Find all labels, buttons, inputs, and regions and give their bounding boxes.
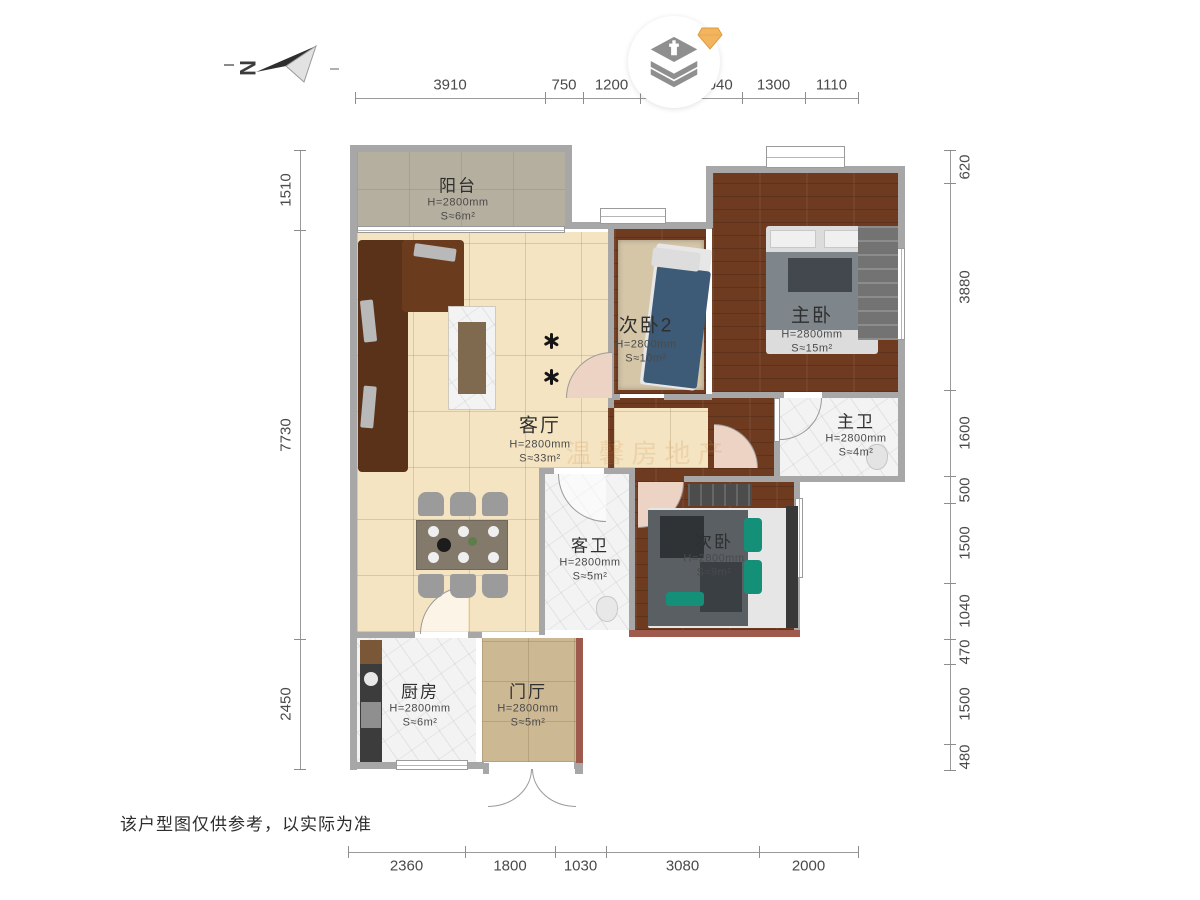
dim-right-tick bbox=[944, 390, 956, 391]
room-label-balcony: 阳台H=2800mmS≈6m² bbox=[427, 176, 488, 225]
window-mullion bbox=[901, 249, 902, 339]
dim-left-tick bbox=[294, 769, 306, 770]
room-name-master-bath: 主卫 bbox=[825, 412, 886, 433]
door-leaf-master-bath bbox=[774, 398, 780, 442]
room-label-living: 客厅H=2800mmS≈33m² bbox=[509, 414, 570, 465]
window bbox=[766, 146, 845, 168]
window bbox=[600, 208, 666, 224]
room-height-bedroom2: H=2800mm bbox=[615, 338, 676, 352]
dim-right-label: 3880 bbox=[957, 270, 974, 303]
window-mullion bbox=[601, 216, 665, 217]
dim-right-tick bbox=[944, 503, 956, 504]
dim-right-tick bbox=[944, 639, 956, 640]
room-label-entry: 门厅H=2800mmS≈5m² bbox=[497, 682, 558, 731]
wall bbox=[468, 632, 482, 638]
window bbox=[357, 226, 565, 233]
room-label-master-bath: 主卫H=2800mmS≈4m² bbox=[825, 412, 886, 461]
room-label-bedroom: 次卧H=2800mmS≈9m² bbox=[683, 532, 744, 581]
wardrobe-bedroom bbox=[688, 484, 752, 506]
disclaimer-text: 该户型图仅供参考，以实际为准 bbox=[120, 810, 372, 835]
entry-door-post bbox=[483, 763, 489, 774]
dim-bottom-label: 2360 bbox=[390, 858, 423, 875]
dim-right-label: 1040 bbox=[957, 594, 974, 627]
room-area-living: S≈33m² bbox=[509, 452, 570, 466]
compass-north-icon: N bbox=[222, 28, 340, 88]
dim-bottom-tick bbox=[465, 846, 466, 858]
dim-left-tick bbox=[294, 639, 306, 640]
entry-door-right bbox=[532, 769, 576, 807]
svg-text:N: N bbox=[235, 60, 260, 76]
room-area-kitchen: S≈6m² bbox=[389, 717, 450, 731]
dim-right-tick bbox=[944, 150, 956, 151]
dim-bottom-tick bbox=[606, 846, 607, 858]
dim-top-label: 1200 bbox=[595, 77, 628, 94]
dim-bottom-tick bbox=[759, 846, 760, 858]
room-name-balcony: 阳台 bbox=[427, 176, 488, 197]
wall bbox=[350, 632, 415, 638]
room-area-entry: S≈5m² bbox=[497, 717, 558, 731]
dim-bottom-label: 1800 bbox=[493, 858, 526, 875]
dim-left-tick bbox=[294, 150, 306, 151]
ceiling-fan-icon bbox=[542, 368, 560, 386]
wall bbox=[664, 394, 712, 400]
room-height-guest-bath: H=2800mm bbox=[559, 557, 620, 571]
window bbox=[396, 760, 468, 770]
dim-top-tick bbox=[545, 92, 546, 104]
room-area-balcony: S≈6m² bbox=[427, 211, 488, 225]
brand-watermark: 温馨房地产 bbox=[565, 434, 730, 471]
dim-right-tick bbox=[944, 476, 956, 477]
dim-right-tick bbox=[944, 664, 956, 665]
dim-top-line bbox=[355, 98, 858, 99]
dim-right-tick bbox=[944, 744, 956, 745]
room-name-entry: 门厅 bbox=[497, 682, 558, 703]
dim-top-label: 750 bbox=[551, 77, 576, 94]
dim-top-tick bbox=[742, 92, 743, 104]
room-name-master: 主卧 bbox=[781, 304, 842, 328]
dim-left-label: 1510 bbox=[278, 173, 295, 206]
room-name-guest-bath: 客卫 bbox=[559, 536, 620, 557]
wall bbox=[774, 440, 780, 476]
room-area-bedroom: S≈9m² bbox=[683, 567, 744, 581]
dim-right-label: 1500 bbox=[957, 526, 974, 559]
room-height-bedroom: H=2800mm bbox=[683, 553, 744, 567]
room-label-master: 主卧H=2800mmS≈15m² bbox=[781, 304, 842, 355]
entry-door-left bbox=[488, 769, 532, 807]
ceiling-fan-icon bbox=[542, 332, 560, 350]
wall bbox=[539, 468, 545, 635]
room-area-master: S≈15m² bbox=[781, 342, 842, 356]
dim-top-label: 1110 bbox=[816, 77, 847, 94]
window-mullion bbox=[799, 499, 800, 577]
dim-bottom-line bbox=[348, 852, 858, 853]
dim-left-label: 7730 bbox=[278, 418, 295, 451]
room-height-living: H=2800mm bbox=[509, 438, 570, 452]
diamond-gem-icon bbox=[697, 26, 723, 50]
room-height-kitchen: H=2800mm bbox=[389, 703, 450, 717]
wall bbox=[350, 145, 357, 770]
window-mullion bbox=[358, 230, 564, 231]
window-mullion bbox=[397, 765, 467, 766]
dim-bottom-label: 2000 bbox=[792, 858, 825, 875]
dim-top-tick bbox=[355, 92, 356, 104]
room-height-entry: H=2800mm bbox=[497, 703, 558, 717]
dim-bottom-label: 1030 bbox=[564, 858, 597, 875]
room-name-bedroom2: 次卧2 bbox=[615, 314, 676, 338]
layers-plus-icon bbox=[643, 31, 705, 93]
wall bbox=[576, 638, 583, 769]
wall bbox=[539, 468, 554, 474]
dim-bottom-label: 3080 bbox=[666, 858, 699, 875]
dim-right-tick bbox=[944, 770, 956, 771]
room-area-guest-bath: S≈5m² bbox=[559, 571, 620, 585]
dim-right-line bbox=[950, 150, 951, 770]
room-name-living: 客厅 bbox=[509, 414, 570, 438]
dim-bottom-tick bbox=[858, 846, 859, 858]
dim-right-label: 470 bbox=[957, 639, 974, 664]
dim-right-label: 1500 bbox=[957, 687, 974, 720]
dim-right-label: 480 bbox=[957, 744, 974, 769]
window-mullion bbox=[767, 157, 844, 158]
dim-left-tick bbox=[294, 230, 306, 231]
floorplan-page: N 阳台H=2800mmS≈6m²次卧2H=2800mmS≈10m²主卧H=28… bbox=[0, 0, 1200, 900]
dim-top-tick bbox=[583, 92, 584, 104]
dim-right-label: 1600 bbox=[957, 416, 974, 449]
dim-top-label: 3910 bbox=[433, 77, 466, 94]
wall bbox=[706, 166, 713, 228]
room-height-master: H=2800mm bbox=[781, 328, 842, 342]
dim-right-label: 620 bbox=[957, 154, 974, 179]
dim-right-label: 500 bbox=[957, 477, 974, 502]
room-label-kitchen: 厨房H=2800mmS≈6m² bbox=[389, 682, 450, 731]
wall bbox=[629, 474, 635, 630]
room-label-guest-bath: 客卫H=2800mmS≈5m² bbox=[559, 536, 620, 585]
dim-left-label: 2450 bbox=[278, 687, 295, 720]
wall bbox=[629, 630, 800, 637]
room-height-master-bath: H=2800mm bbox=[825, 433, 886, 447]
wall bbox=[350, 145, 572, 152]
room-area-master-bath: S≈4m² bbox=[825, 447, 886, 461]
dim-top-tick bbox=[805, 92, 806, 104]
wall bbox=[565, 145, 572, 229]
wall bbox=[822, 392, 905, 398]
dim-right-tick bbox=[944, 183, 956, 184]
dim-top-tick bbox=[858, 92, 859, 104]
room-name-kitchen: 厨房 bbox=[389, 682, 450, 703]
wardrobe-master bbox=[858, 226, 898, 340]
room-height-balcony: H=2800mm bbox=[427, 197, 488, 211]
dim-bottom-tick bbox=[348, 846, 349, 858]
dim-bottom-tick bbox=[555, 846, 556, 858]
room-label-bedroom2: 次卧2H=2800mmS≈10m² bbox=[615, 314, 676, 365]
entry-door-post bbox=[575, 763, 583, 774]
dim-top-label: 1300 bbox=[757, 77, 790, 94]
dim-right-tick bbox=[944, 583, 956, 584]
toilet-guest-bath bbox=[596, 596, 618, 622]
room-name-bedroom: 次卧 bbox=[683, 532, 744, 553]
room-area-bedroom2: S≈10m² bbox=[615, 352, 676, 366]
dim-left-line bbox=[300, 150, 301, 769]
wall bbox=[684, 476, 794, 482]
